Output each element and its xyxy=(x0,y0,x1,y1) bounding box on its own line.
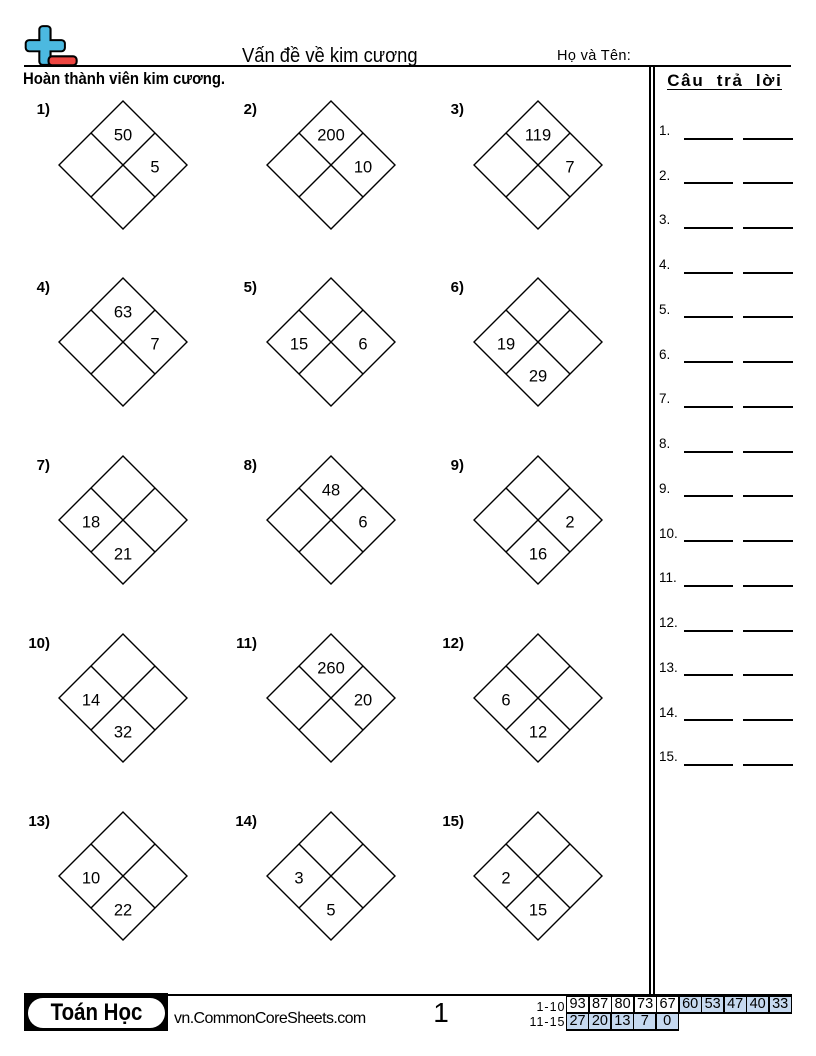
svg-text:12: 12 xyxy=(528,724,546,742)
svg-text:119: 119 xyxy=(524,126,550,144)
svg-text:15: 15 xyxy=(528,902,546,920)
svg-text:18: 18 xyxy=(82,514,100,532)
svg-text:10: 10 xyxy=(82,870,100,888)
svg-text:6: 6 xyxy=(358,514,367,532)
svg-text:16: 16 xyxy=(528,546,546,564)
svg-text:19: 19 xyxy=(496,336,514,354)
svg-text:5: 5 xyxy=(150,158,159,176)
svg-text:48: 48 xyxy=(321,482,339,500)
svg-text:2: 2 xyxy=(565,514,574,532)
svg-text:32: 32 xyxy=(114,724,132,742)
svg-text:63: 63 xyxy=(114,304,132,322)
svg-text:29: 29 xyxy=(528,368,546,386)
svg-text:200: 200 xyxy=(317,126,345,144)
svg-text:7: 7 xyxy=(565,158,574,176)
svg-text:7: 7 xyxy=(150,336,159,354)
svg-text:5: 5 xyxy=(326,902,335,920)
svg-text:6: 6 xyxy=(358,336,367,354)
svg-text:3: 3 xyxy=(294,870,303,888)
svg-text:20: 20 xyxy=(353,692,371,710)
svg-text:260: 260 xyxy=(317,660,345,678)
svg-text:2: 2 xyxy=(501,870,510,888)
svg-text:10: 10 xyxy=(353,158,371,176)
svg-text:21: 21 xyxy=(114,546,132,564)
svg-text:22: 22 xyxy=(114,902,132,920)
svg-text:14: 14 xyxy=(82,692,100,710)
svg-text:15: 15 xyxy=(289,336,307,354)
svg-text:6: 6 xyxy=(501,692,510,710)
svg-text:50: 50 xyxy=(114,126,132,144)
